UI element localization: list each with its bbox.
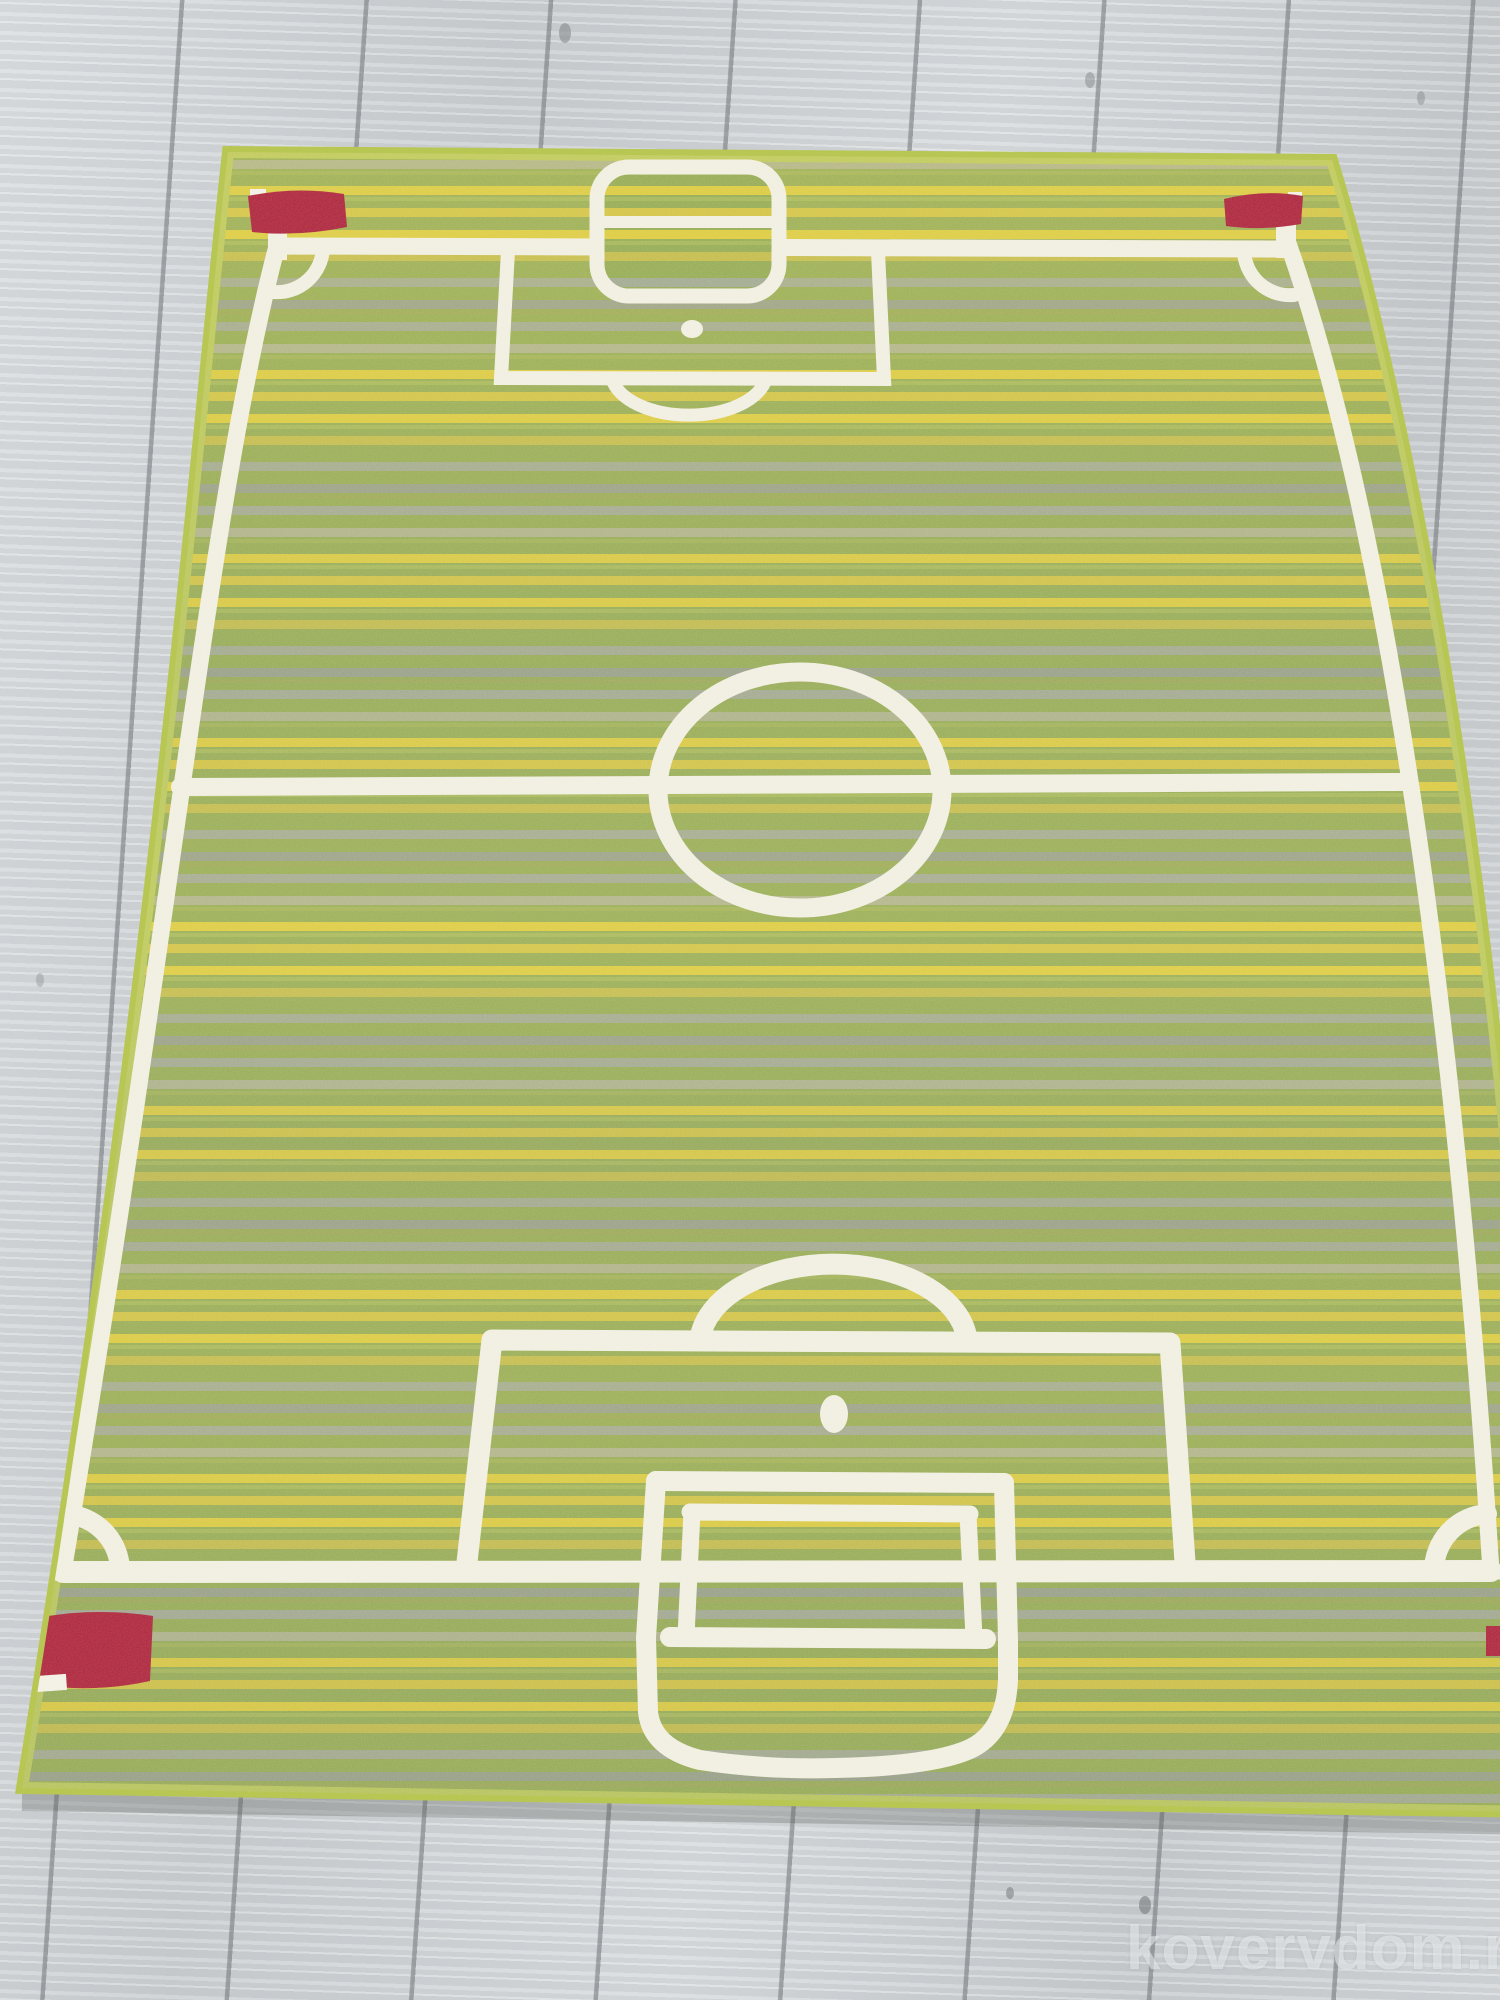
scene-overlay	[0, 0, 1500, 2000]
photo-grain	[0, 0, 1500, 2000]
watermark: kovervdom.ru	[1126, 1918, 1500, 1980]
product-photo: kovervdom.ru	[0, 0, 1500, 2000]
